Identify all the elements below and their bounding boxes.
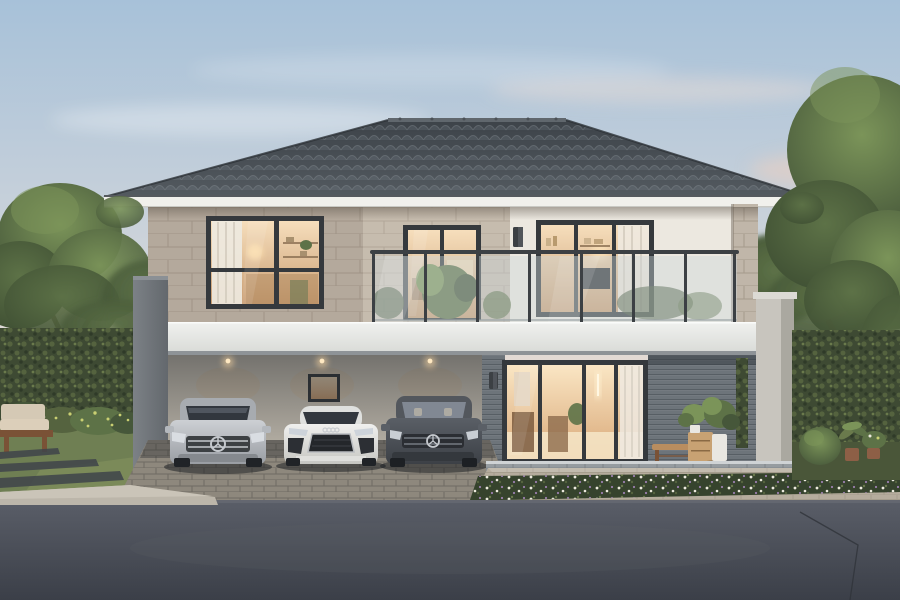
dark-gray-sedan [380,396,488,473]
sedan-mirror-left [381,424,390,431]
cars [164,396,488,474]
interior-chair [290,280,308,304]
handrail [370,250,739,254]
architectural-rendering [0,0,900,600]
silver-suv [164,398,272,474]
right-siding-wall [648,355,756,473]
suv-mirror-right [262,426,271,433]
eave-fascia [104,197,810,207]
left-tree-overhang-leaves [96,196,144,228]
sliding-glass-door [500,360,650,467]
suv-mirror-left [165,426,174,433]
curtain [212,221,242,304]
balcony-slab [150,322,790,354]
interior-plant [300,240,312,250]
terracotta-pot [845,448,859,461]
scene-canvas [0,0,900,600]
right-fence-pillar [753,292,797,474]
sports-grille [308,434,354,452]
side-cabinet [688,432,713,462]
interior-chair [548,416,568,452]
sedan-mirror-right [478,424,487,431]
road [0,500,900,600]
left-bedroom-window [206,216,324,309]
